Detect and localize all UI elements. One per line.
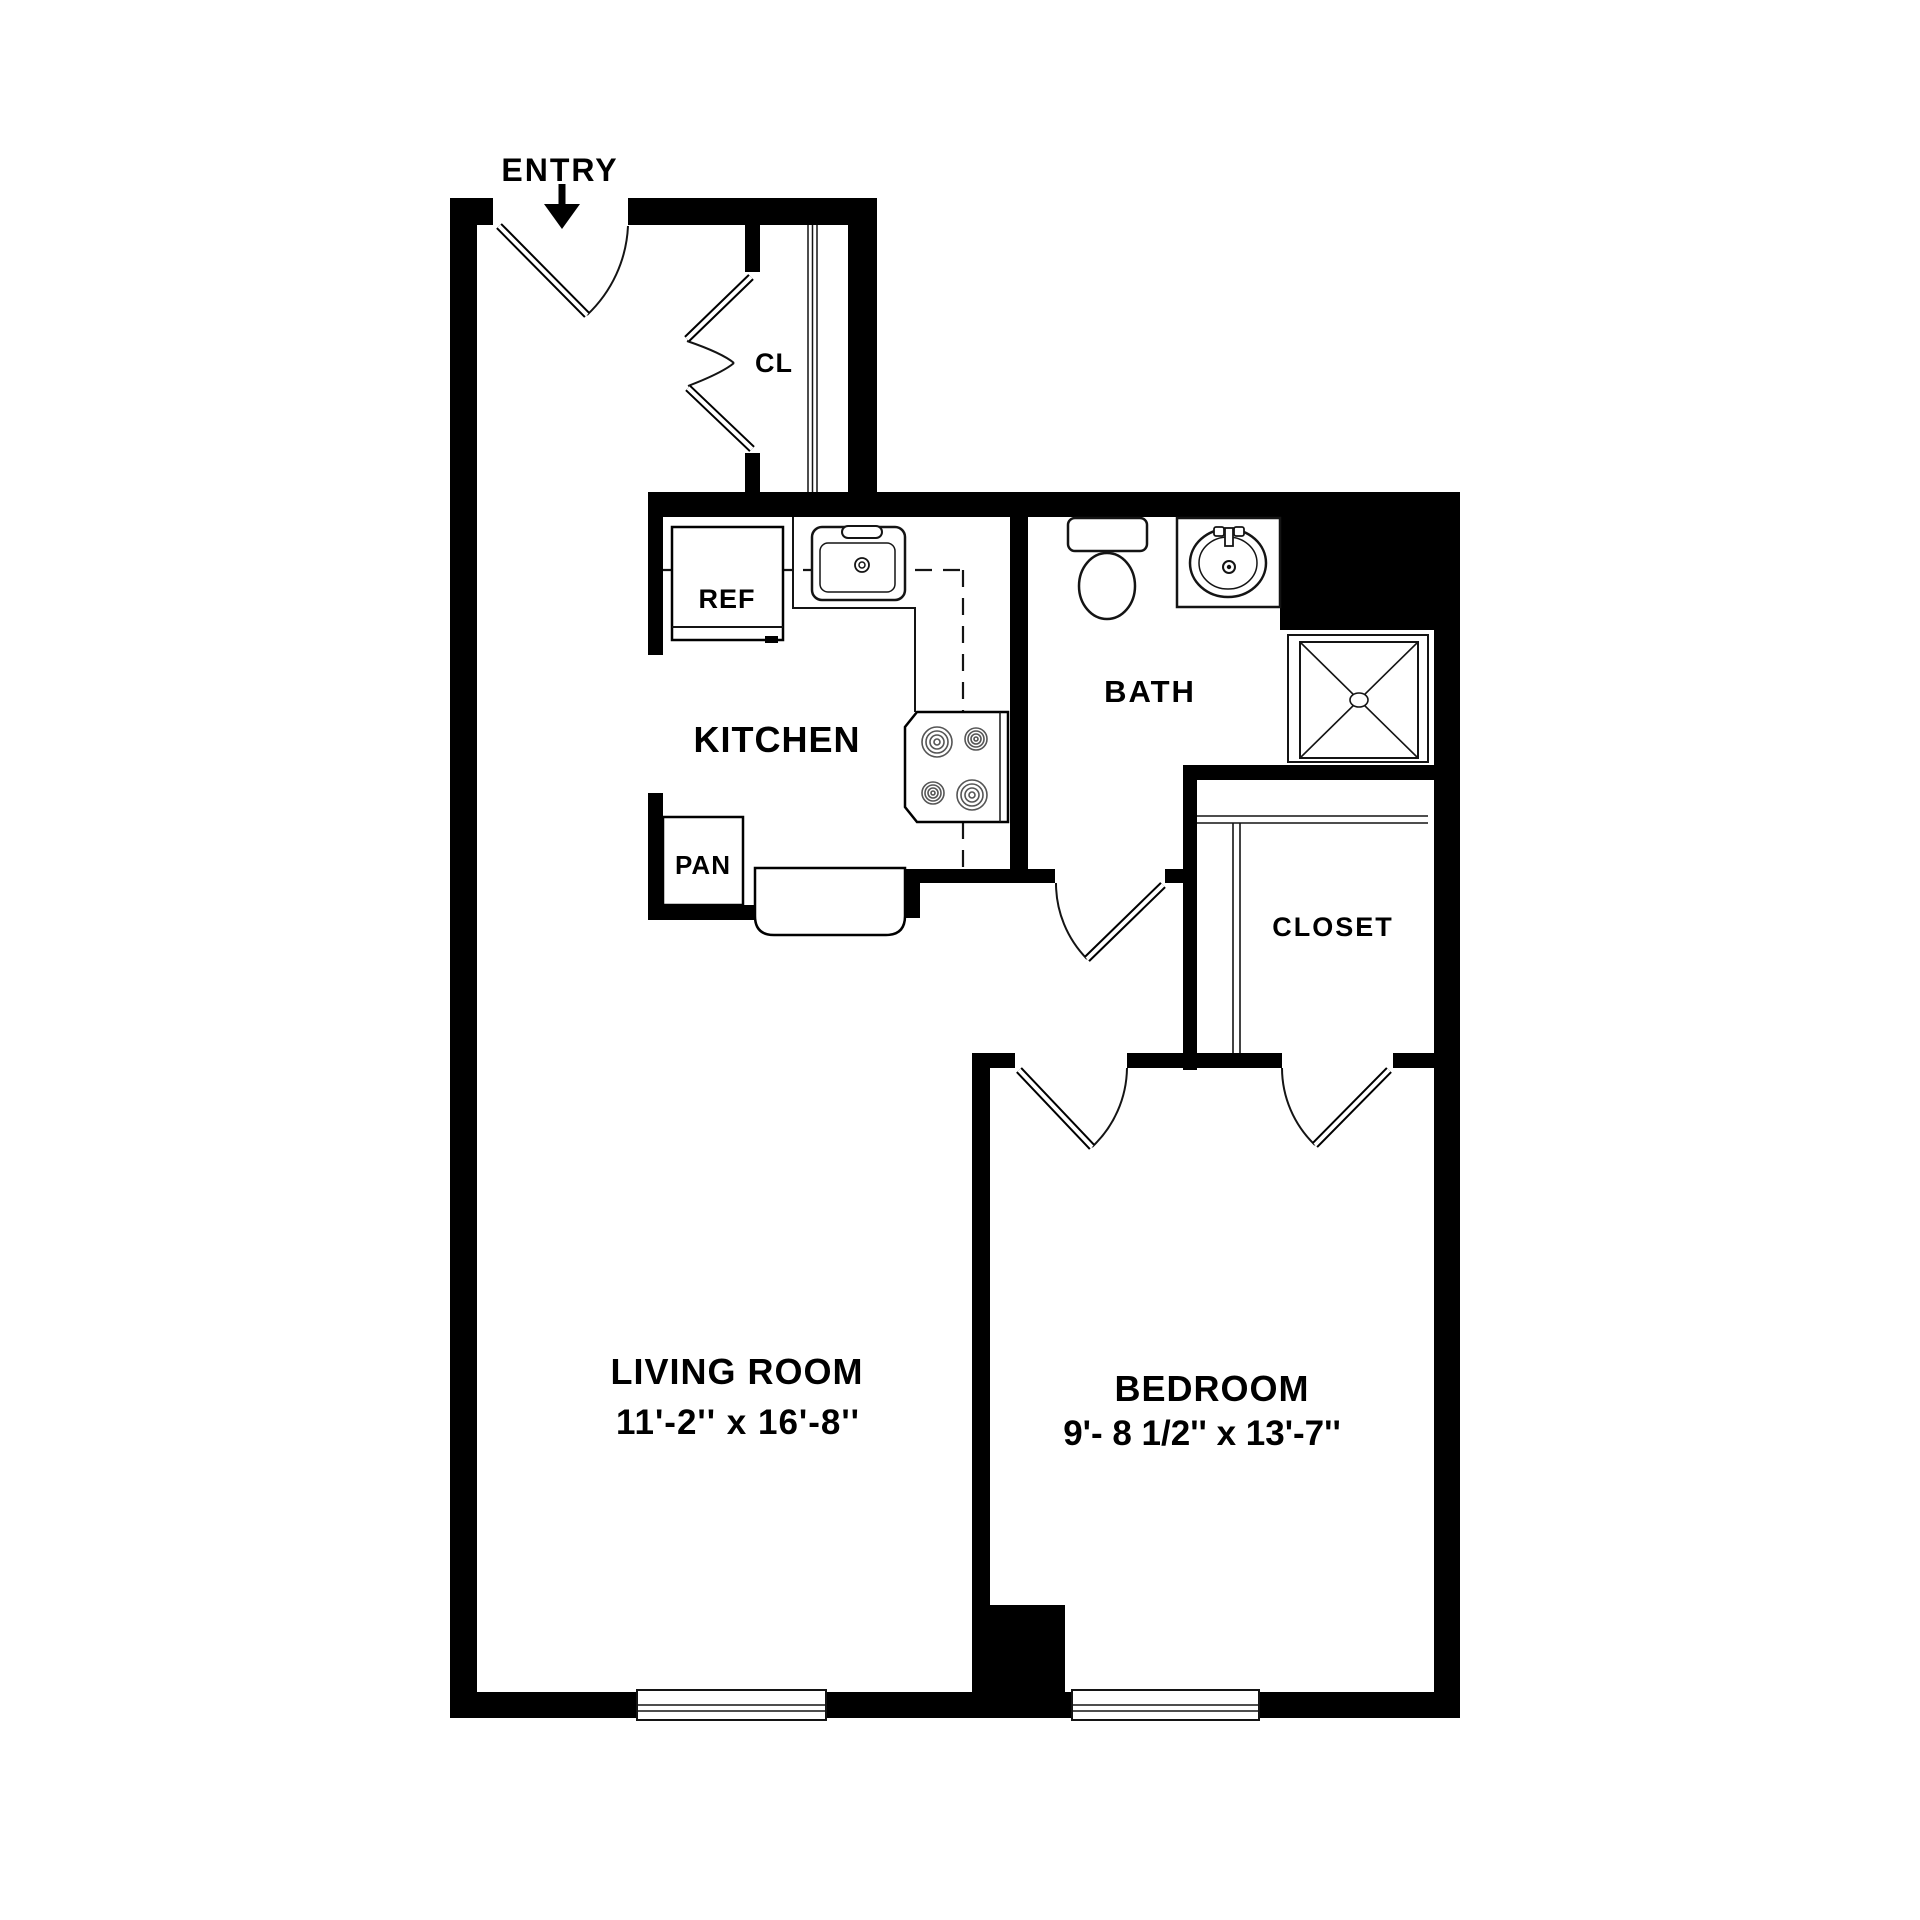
cl-closet-track-lines — [808, 225, 817, 492]
wall-bedroom-top-b — [1127, 1053, 1183, 1068]
wall-bottom-c — [1259, 1692, 1460, 1718]
kitchen-label: KITCHEN — [694, 719, 861, 760]
closet-door — [1282, 1068, 1389, 1145]
shower — [1288, 635, 1428, 762]
wall-left — [450, 198, 477, 1718]
bedroom-window — [1072, 1690, 1259, 1720]
living-room-dimensions: 11'-2'' x 16'-8'' — [616, 1403, 860, 1442]
wall-livingroom-bedroom-divider — [972, 1053, 990, 1692]
wall-bedroom-chimney-block — [972, 1605, 1065, 1692]
kitchen-sink — [812, 526, 905, 600]
stove — [905, 712, 1008, 822]
wall-bath-bottom-right-jamb — [1165, 869, 1183, 883]
wall-right — [1434, 492, 1460, 1718]
wall-bottom-b — [826, 1692, 1072, 1718]
wall-top-left-segment — [450, 198, 493, 225]
bath-label: BATH — [1104, 674, 1196, 709]
bedroom-door — [1019, 1068, 1127, 1147]
bath-door-swing-arc — [1056, 883, 1087, 959]
wall-bedroom-top-c — [1197, 1053, 1282, 1068]
cl-upper-door-arc — [687, 341, 734, 363]
floorplan-canvas: ENTRY CL REF KITCHEN PAN BATH CLOSET LIV… — [0, 0, 1920, 1920]
wall-kitchen-left — [648, 517, 663, 655]
entry-closet-label: CL — [755, 348, 793, 378]
wall-closet-left — [1183, 765, 1197, 1070]
wall-pantry-bottom — [648, 905, 757, 920]
entry-arrow-icon — [544, 184, 580, 229]
refrigerator-handle — [765, 636, 778, 643]
bath-door — [1056, 883, 1163, 959]
wall-top-right-segment — [628, 198, 877, 225]
bath-faucet-handle-right — [1234, 527, 1244, 536]
bath-faucet-handle-left — [1214, 527, 1224, 536]
cl-lower-door-arc — [688, 363, 734, 386]
wall-entry-right-vertical — [848, 198, 877, 517]
bedroom-door-swing-arc — [1092, 1068, 1127, 1147]
closet-door-swing-arc — [1282, 1068, 1315, 1145]
entry-label: ENTRY — [501, 152, 618, 188]
toilet-tank — [1068, 518, 1147, 551]
wall-pantry-left — [648, 793, 663, 920]
wall-kitchen-bath-divider — [1010, 517, 1028, 883]
toilet-bowl — [1079, 553, 1135, 619]
wall-bath-bottom-left — [1028, 869, 1055, 883]
shower-drain — [1350, 693, 1368, 707]
kitchen-faucet — [842, 526, 882, 538]
closet-label: CLOSET — [1272, 912, 1394, 942]
wall-kitchen-bottom — [905, 869, 1028, 883]
bedroom-dimensions: 9'- 8 1/2'' x 13'-7'' — [1063, 1414, 1341, 1453]
bathroom-sink — [1177, 518, 1280, 607]
wall-bath-corner-block — [1280, 513, 1460, 630]
kitchen-peninsula-counter — [755, 868, 905, 935]
wall-bottom-a — [450, 1692, 637, 1718]
refrigerator-label: REF — [699, 584, 756, 614]
bedroom-label: BEDROOM — [1115, 1368, 1310, 1409]
pantry-label: PAN — [675, 850, 731, 880]
floorplan-drawing: ENTRY CL REF KITCHEN PAN BATH CLOSET LIV… — [0, 0, 1920, 1920]
bath-faucet-spout — [1225, 528, 1233, 546]
walls — [450, 198, 1460, 1718]
living-room-label: LIVING ROOM — [611, 1351, 864, 1392]
wall-cl-stub-top — [745, 225, 760, 272]
toilet — [1068, 518, 1147, 619]
wall-cl-stub-bottom — [745, 453, 760, 495]
living-room-window — [637, 1690, 826, 1720]
wall-closet-top — [1183, 765, 1460, 780]
entry-door-swing-arc — [587, 226, 628, 315]
wall-bedroom-top-d — [1393, 1053, 1434, 1068]
wall-kitchen-bottom-stub — [905, 883, 920, 918]
entry-door — [499, 226, 628, 315]
